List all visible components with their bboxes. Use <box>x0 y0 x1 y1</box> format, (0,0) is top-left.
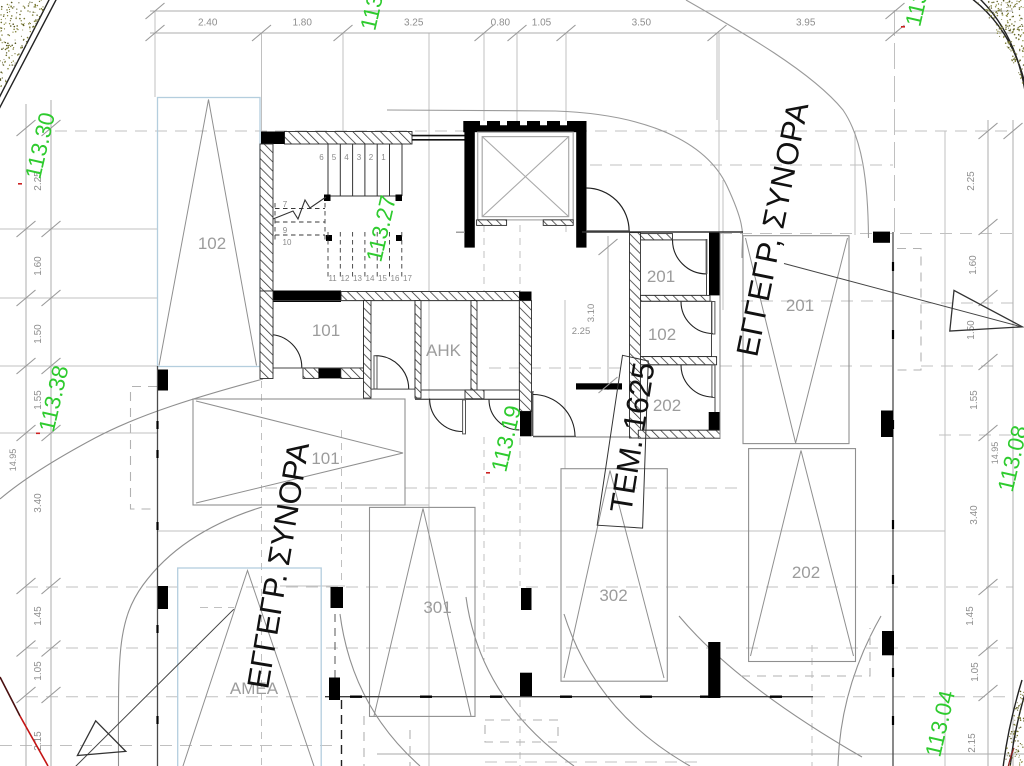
svg-text:102: 102 <box>198 234 226 253</box>
svg-text:3.25: 3.25 <box>404 18 424 29</box>
svg-text:12: 12 <box>341 274 350 283</box>
svg-text:14: 14 <box>366 274 375 283</box>
svg-text:1.05: 1.05 <box>33 661 44 681</box>
svg-text:2.25: 2.25 <box>572 326 591 337</box>
svg-text:2.25: 2.25 <box>966 171 977 191</box>
svg-text:16: 16 <box>391 274 400 283</box>
svg-text:302: 302 <box>599 586 627 605</box>
svg-text:1.60: 1.60 <box>968 255 979 275</box>
svg-text:14.95: 14.95 <box>8 449 18 472</box>
svg-text:17: 17 <box>403 274 412 283</box>
svg-text:102: 102 <box>648 325 676 344</box>
svg-text:202: 202 <box>653 396 681 415</box>
svg-text:2.40: 2.40 <box>198 18 218 29</box>
svg-text:201: 201 <box>786 296 814 315</box>
svg-text:1.05: 1.05 <box>970 662 981 682</box>
svg-text:3.40: 3.40 <box>969 505 980 525</box>
svg-text:1.45: 1.45 <box>33 606 44 626</box>
svg-text:3: 3 <box>357 153 362 162</box>
svg-text:15: 15 <box>378 274 387 283</box>
svg-text:2: 2 <box>369 153 374 162</box>
svg-text:5: 5 <box>332 153 337 162</box>
svg-text:1.80: 1.80 <box>292 18 312 29</box>
svg-text:101: 101 <box>311 449 339 468</box>
svg-text:2.15: 2.15 <box>967 733 978 753</box>
svg-text:11: 11 <box>328 274 337 283</box>
svg-text:1.50: 1.50 <box>33 324 44 344</box>
svg-text:3.40: 3.40 <box>33 493 44 513</box>
svg-text:1.05: 1.05 <box>532 18 552 29</box>
svg-text:ΑΗΚ: ΑΗΚ <box>426 341 462 360</box>
svg-text:101: 101 <box>312 321 340 340</box>
svg-text:1.55: 1.55 <box>969 390 980 410</box>
svg-text:1: 1 <box>381 153 386 162</box>
svg-text:0.80: 0.80 <box>491 18 511 29</box>
svg-text:201: 201 <box>647 267 675 286</box>
svg-text:7: 7 <box>283 200 288 209</box>
svg-text:10: 10 <box>283 238 292 247</box>
svg-text:3.50: 3.50 <box>632 18 652 29</box>
svg-text:202: 202 <box>792 563 820 582</box>
svg-text:1.45: 1.45 <box>965 606 976 626</box>
svg-text:1.60: 1.60 <box>33 256 44 276</box>
svg-text:301: 301 <box>423 598 451 617</box>
svg-text:3.10: 3.10 <box>586 304 597 323</box>
svg-text:4: 4 <box>344 153 349 162</box>
svg-text:13: 13 <box>353 274 362 283</box>
svg-text:3.95: 3.95 <box>796 18 816 29</box>
svg-text:6: 6 <box>319 153 324 162</box>
svg-text:9: 9 <box>283 226 288 235</box>
